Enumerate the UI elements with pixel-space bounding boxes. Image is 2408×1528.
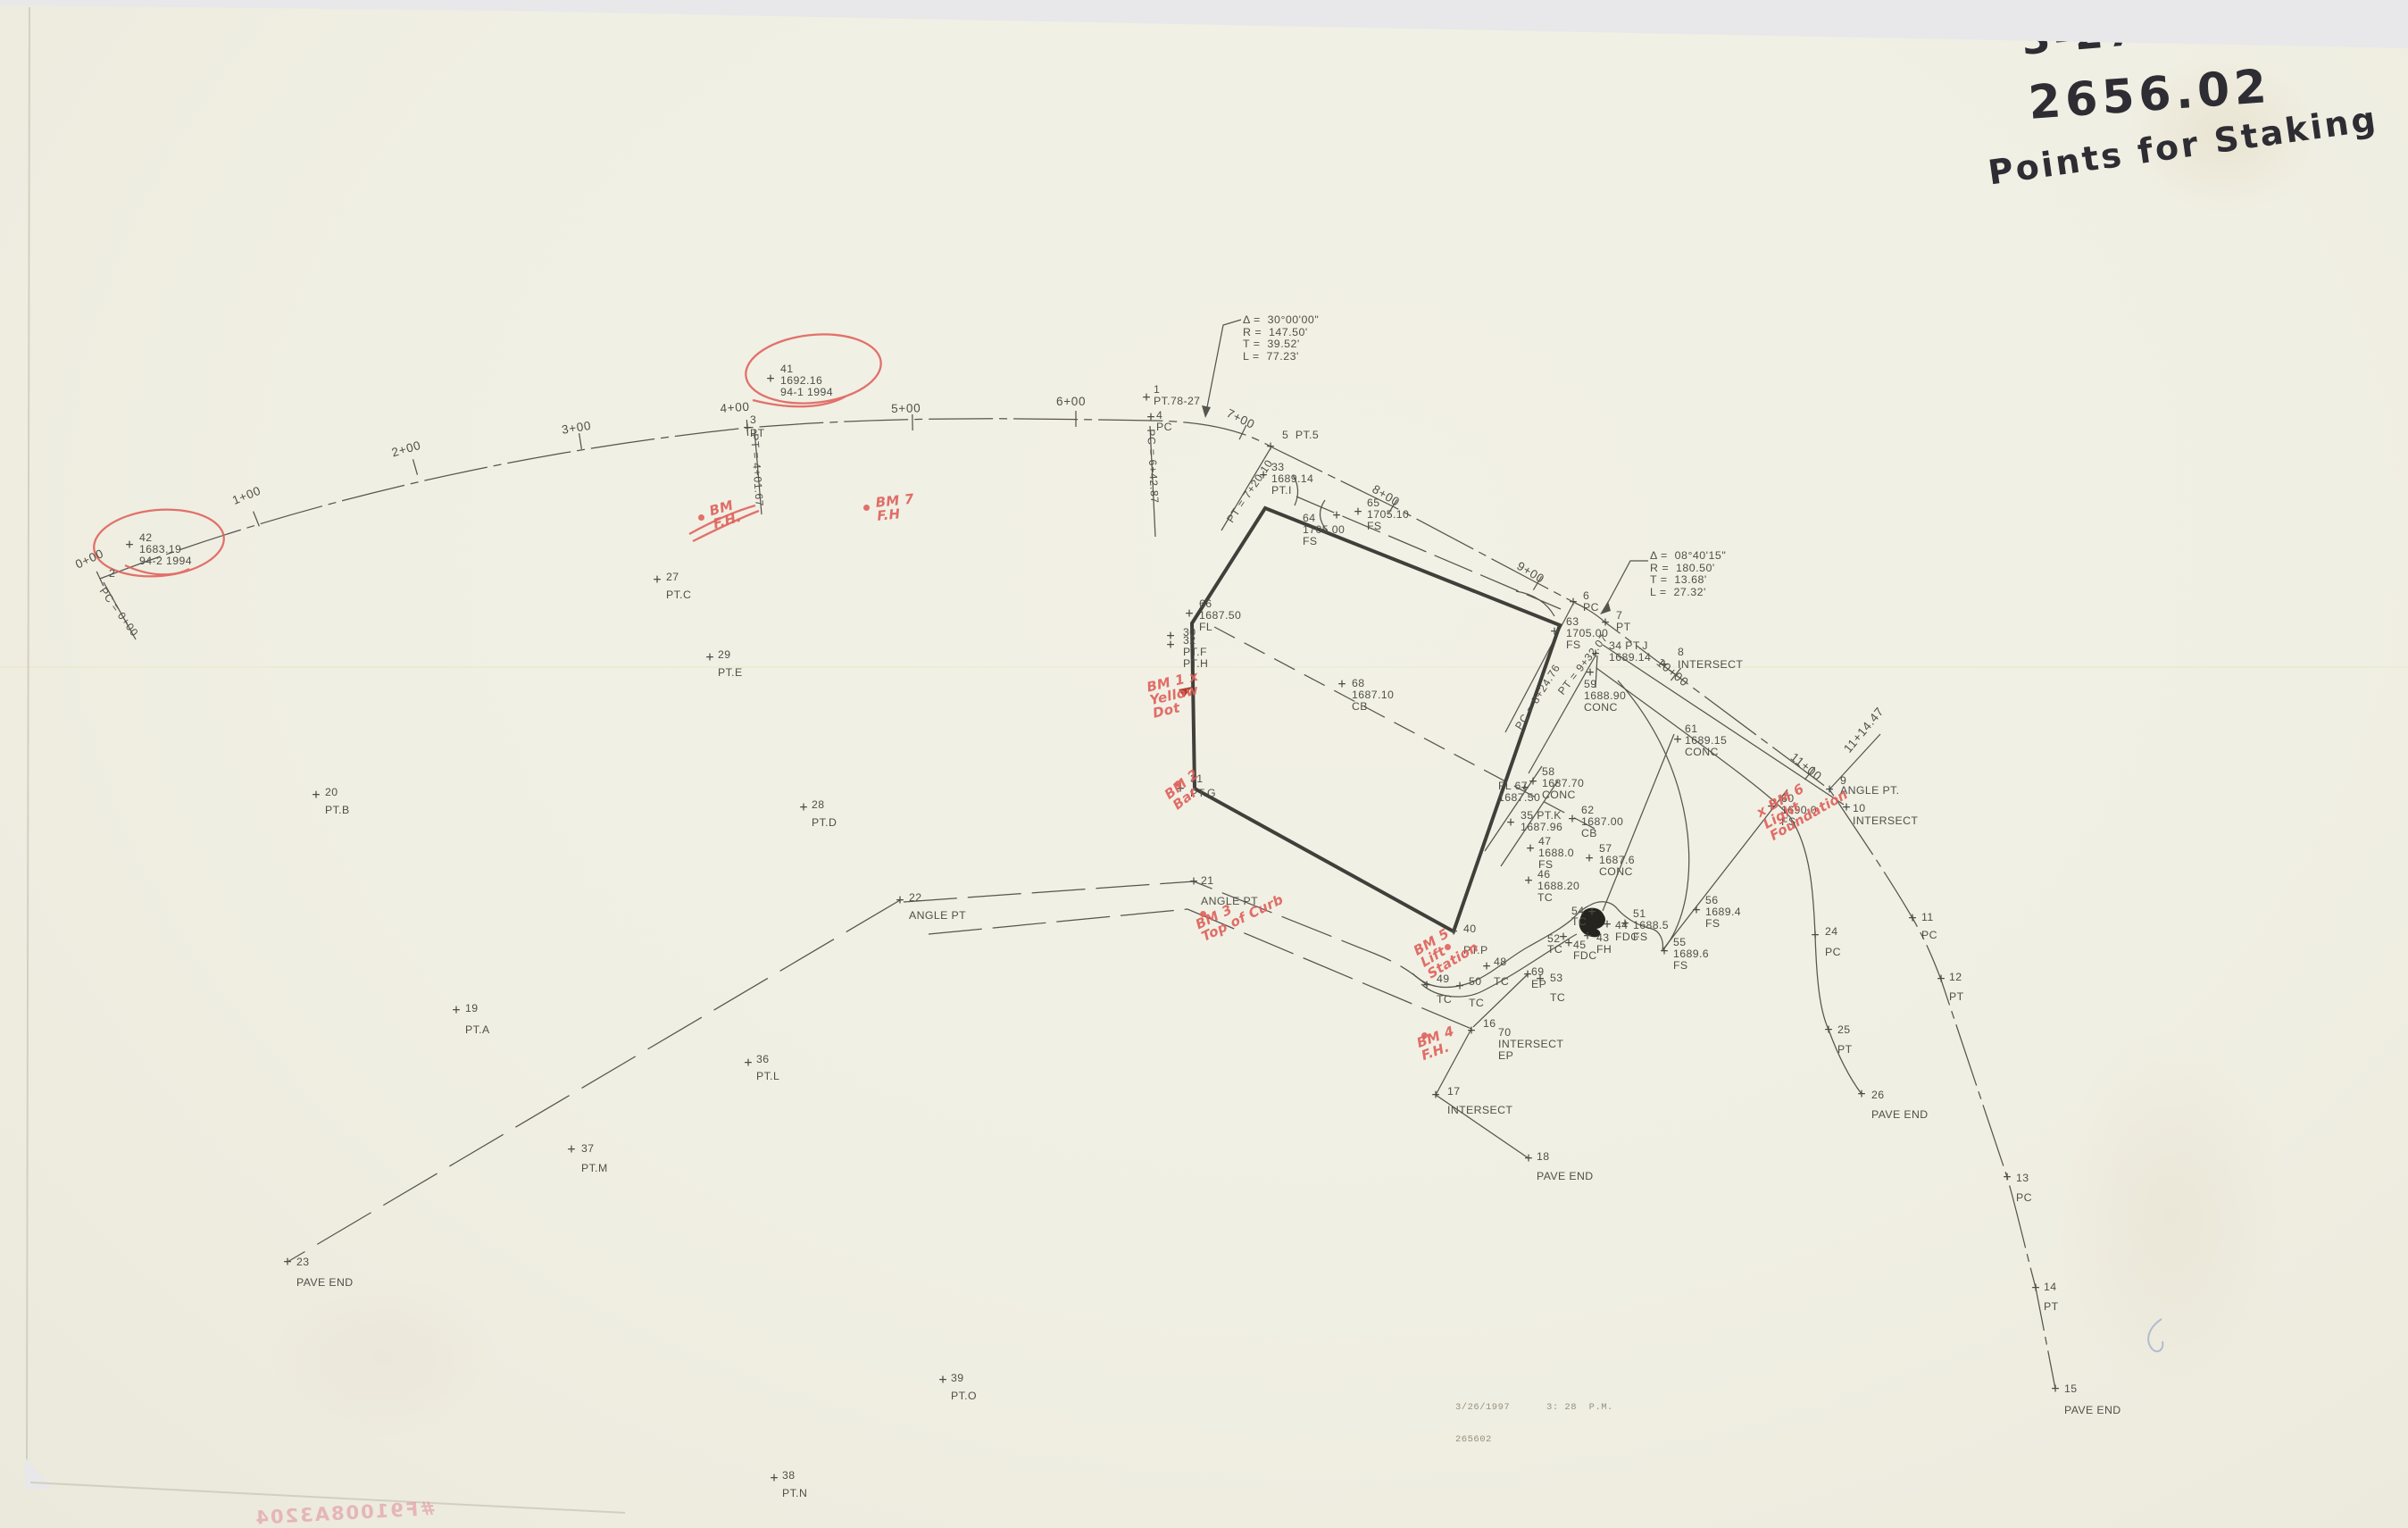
building-outline (1192, 508, 1560, 931)
point-label-line: 69 (1531, 965, 1546, 978)
point-label-line: PT.C (666, 586, 691, 604)
point-label-line: PT (1616, 622, 1631, 633)
point-label-33: 331689.14PT.I (1271, 462, 1313, 497)
point-label-line: FDC (1573, 950, 1596, 961)
point-label-9: 9ANGLE PT. (1840, 776, 1899, 796)
point-label-line: 5 PT.5 (1282, 430, 1319, 441)
point-marker-24: + (1811, 926, 1819, 942)
point-label-line: FS (1303, 536, 1345, 547)
point-marker-50: + (1455, 977, 1463, 993)
curve-data-row: T = 13.68' (1650, 574, 1726, 587)
point-label-11: 11PC (1921, 908, 1937, 944)
point-label-line: 14 (2044, 1277, 2059, 1297)
point-label-line: FS (1673, 960, 1709, 972)
point-label-5: 5 PT.5 (1282, 430, 1319, 441)
point-label-line: CONC (1599, 866, 1635, 878)
point-label-line: 8 (1678, 646, 1743, 658)
point-marker-16: + (1467, 1022, 1475, 1038)
paper-edge-crease (27, 7, 29, 1465)
point-label-43: 43FH (1596, 932, 1612, 956)
red-benchmark-dot (1175, 781, 1181, 787)
point-label-line: PT (750, 427, 765, 440)
point-label-34: 34 PT.J1689.14 (1609, 640, 1651, 664)
point-marker-21: + (1189, 873, 1197, 889)
point-label-line: PT (1837, 1040, 1853, 1059)
point-marker-25: + (1824, 1021, 1832, 1037)
point-label-line: CONC (1685, 747, 1727, 758)
point-marker-11: + (1908, 909, 1916, 925)
paper-corner-notch (25, 1457, 54, 1490)
point-marker-51: + (1621, 914, 1629, 931)
point-label-line: INTERSECT (1447, 1101, 1512, 1120)
point-label-line: PC (1921, 926, 1937, 944)
point-label-38: 38PT.N (782, 1466, 807, 1502)
point-marker-5: + (1266, 438, 1274, 454)
point-label-line: PT (2044, 1297, 2059, 1316)
point-label-68: 681687.10CB (1352, 678, 1394, 713)
point-label-66: 661687.50FL (1199, 598, 1241, 633)
scanned-survey-drawing: 3-27-97 2656.02 Points for Staking Δ = 3… (0, 0, 2408, 1528)
point-marker-12: + (1937, 970, 1945, 986)
point-label-67: FL 671687.50 (1498, 781, 1540, 804)
point-marker-44: + (1603, 915, 1611, 931)
point-label-line: PC (2016, 1188, 2032, 1207)
point-marker-33: + (1259, 466, 1267, 482)
point-label-32: 32PT.FPT.H (1183, 635, 1208, 670)
point-label-46: 461688.20TC (1537, 869, 1579, 904)
point-label-line: 94-1 1994 (780, 387, 833, 398)
point-marker-26: + (1857, 1085, 1865, 1101)
point-label-line: FS (1566, 639, 1608, 651)
point-label-line: 20 (325, 783, 350, 801)
point-marker-36: + (744, 1054, 752, 1070)
point-label-3: 3PT (750, 413, 765, 440)
point-label-line: PAVE END (2064, 1399, 2121, 1421)
point-label-line: 39 (951, 1369, 977, 1387)
point-label-line: CONC (1584, 702, 1626, 714)
point-marker-29: + (705, 648, 713, 664)
point-marker-17: + (1431, 1086, 1439, 1102)
point-label-line: PT.N (782, 1484, 807, 1502)
point-label-35: 35 PT.K1687.96 (1521, 810, 1562, 833)
point-marker-38: + (770, 1469, 778, 1485)
bleed-line-1: #F91008A3204 (61, 1498, 437, 1528)
point-label-line: 48 (1494, 952, 1509, 972)
point-label-line: 22 (909, 889, 966, 906)
point-label-57: 571687.6CONC (1599, 843, 1635, 878)
point-label-line: PT (1949, 987, 1964, 1006)
red-benchmark-dot (698, 514, 704, 521)
point-label-55: 551689.6FS (1673, 937, 1709, 972)
point-label-36: 36PT.L (756, 1051, 779, 1085)
point-label-16: 16 (1483, 1018, 1496, 1030)
road-edge (1596, 668, 1862, 1094)
point-label-line: TC (1547, 944, 1562, 955)
lower-road-edge (904, 881, 1427, 985)
road-linework (96, 320, 2055, 1389)
blue-pen-squiggle (2148, 1319, 2162, 1351)
point-label-42: 421683.1994-2 1994 (139, 532, 192, 567)
point-marker-63: + (1550, 622, 1558, 639)
point-label-17: 17INTERSECT (1447, 1082, 1512, 1120)
point-marker-20: + (312, 786, 320, 802)
point-label-line: PT.I (1271, 485, 1313, 497)
point-label-8: 8INTERSECT (1678, 646, 1743, 671)
point-label-24: 24PC (1825, 922, 1841, 963)
curve-data-table-1: Δ = 30°00'00"R = 147.50'T = 39.52'L = 77… (1243, 314, 1319, 363)
point-label-2: 2 (109, 568, 115, 580)
point-label-line: 10 (1853, 802, 1918, 814)
red-benchmark-dot (1200, 911, 1206, 917)
station-ticks (96, 411, 1814, 780)
point-marker-42: + (125, 536, 133, 552)
paper-sheet: 3-27-97 2656.02 Points for Staking Δ = 3… (0, 0, 2408, 1528)
point-label-52: 52TC (1547, 933, 1562, 955)
point-marker-28: + (799, 798, 807, 814)
point-label-4: 4PC (1156, 410, 1172, 433)
point-label-54: 54TC (1571, 906, 1587, 927)
point-label-47: 471688.0FS (1538, 836, 1574, 871)
point-label-19: 19PT.A (465, 998, 490, 1040)
point-marker-65: + (1354, 503, 1362, 519)
point-label-14: 14PT (2044, 1277, 2059, 1316)
point-label-23: 23PAVE END (296, 1252, 354, 1293)
station-label: 4+00 (720, 400, 750, 415)
point-label-line: TC (1494, 972, 1509, 991)
point-label-45: 45FDC (1573, 939, 1596, 961)
point-marker-57: + (1585, 849, 1593, 865)
point-marker-13: + (2003, 1168, 2011, 1184)
curve-data-row: Δ = 08°40'15" (1650, 550, 1726, 563)
point-label-25: 25PT (1837, 1020, 1853, 1059)
point-label-line: FL (1199, 622, 1241, 633)
point-label-51: 511688.5FS (1633, 908, 1669, 943)
curve-data-row: L = 27.32' (1650, 587, 1726, 599)
curve-data-row: L = 77.23' (1243, 351, 1319, 363)
curve-data-table-2: Δ = 08°40'15"R = 180.50'T = 13.68'L = 27… (1650, 550, 1726, 598)
red-benchmark-dot (1421, 1032, 1428, 1039)
point-marker-15: + (2051, 1380, 2059, 1396)
point-label-line: 13 (2016, 1168, 2032, 1188)
point-marker-49: + (1422, 976, 1430, 992)
red-benchmark-dot (1445, 944, 1451, 950)
point-marker-61: + (1673, 731, 1681, 747)
point-label-line: PT.78-27 (1154, 396, 1200, 407)
point-label-line: 94-2 1994 (139, 555, 192, 567)
point-label-line: ANGLE PT (909, 906, 966, 924)
point-label-line: TC (1550, 988, 1565, 1007)
point-label-line: 38 (782, 1466, 807, 1484)
point-label-line: 37 (581, 1139, 608, 1158)
point-label-27: 27PT.C (666, 568, 691, 604)
point-label-line: 1687.50 (1498, 792, 1540, 804)
point-marker-47: + (1526, 839, 1534, 856)
point-marker-27: + (653, 571, 661, 587)
station-tick (413, 459, 418, 474)
point-label-line: FS (1633, 931, 1669, 943)
point-label-line: 12 (1949, 967, 1964, 987)
stamp-number: 265602 (1455, 1434, 1613, 1445)
red-pen-marks (91, 328, 885, 581)
point-label-line: PC (1156, 422, 1172, 433)
point-label-line: PT.E (718, 664, 743, 681)
point-label-29: 29PT.E (718, 646, 743, 681)
point-label-line: 17 (1447, 1082, 1512, 1101)
point-label-line: FS (1538, 859, 1574, 871)
point-label-line: 27 (666, 568, 691, 586)
point-label-line: 28 (812, 796, 837, 814)
point-label-39: 39PT.O (951, 1369, 977, 1405)
point-label-line: PC (1583, 602, 1599, 614)
point-label-line: 16 (1483, 1018, 1496, 1030)
point-label-line: 24 (1825, 922, 1841, 942)
point-label-line: TC (1469, 992, 1484, 1014)
point-label-48: 48TC (1494, 952, 1509, 991)
point-label-line: 11 (1921, 908, 1937, 926)
red-benchmark-note: BM 7F.H (875, 492, 916, 522)
point-label-line: 23 (296, 1252, 354, 1273)
point-label-line: PAVE END (296, 1273, 354, 1293)
point-label-line: PC (1825, 942, 1841, 963)
point-label-line: ANGLE PT. (1840, 786, 1899, 796)
point-marker-55: + (1660, 942, 1668, 958)
dashed-tie-line (287, 900, 900, 1262)
point-label-50: 50TC (1469, 971, 1484, 1014)
point-label-line: INTERSECT (1678, 658, 1743, 671)
point-label-line: 18 (1537, 1147, 1594, 1166)
point-label-41: 411692.1694-1 1994 (780, 363, 833, 398)
point-label-line: PAVE END (1871, 1105, 1929, 1124)
stamp-time: 3: 28 P.M. (1546, 1402, 1613, 1413)
point-label-12: 12PT (1949, 967, 1964, 1006)
point-label-53: 53TC (1550, 968, 1565, 1007)
point-marker-8: + (1660, 655, 1668, 672)
point-label-line: CB (1352, 701, 1394, 713)
point-label-line: 3 (750, 413, 765, 427)
station-tick (254, 512, 260, 527)
point-label-line: PT.L (756, 1068, 779, 1085)
point-label-line: TC (1537, 892, 1579, 904)
point-label-line: PAVE END (1537, 1166, 1594, 1186)
point-label-line: 21 (1201, 871, 1258, 891)
main-alignment-centerline (100, 419, 2055, 1389)
curve-table-leader (1604, 561, 1648, 609)
point-marker-32: + (1166, 636, 1174, 652)
point-label-line: 53 (1550, 968, 1565, 988)
point-label-18: 18PAVE END (1537, 1147, 1594, 1186)
point-label-line: 36 (756, 1051, 779, 1068)
point-label-58: 581687.70CONC (1542, 766, 1584, 801)
curve-table-leader (1207, 320, 1241, 407)
point-label-26: 26PAVE END (1871, 1085, 1929, 1124)
point-label-line: EP (1498, 1050, 1563, 1062)
point-marker-41: + (766, 370, 774, 386)
point-label-line: 25 (1837, 1020, 1853, 1040)
station-tick (579, 433, 582, 449)
point-marker-66: + (1185, 605, 1193, 621)
point-marker-54: + (1587, 903, 1596, 919)
leader-arrowhead (1600, 601, 1611, 614)
point-label-69: 69EP (1531, 965, 1546, 990)
red-benchmark-dot (863, 505, 870, 511)
point-label-56: 561689.4FS (1705, 895, 1741, 930)
point-label-line: 19 (465, 998, 490, 1019)
point-label-37: 37PT.M (581, 1139, 608, 1178)
point-label-10: 10INTERSECT (1853, 802, 1918, 827)
point-marker-4: + (1146, 408, 1154, 424)
point-label-65: 651705.10FS (1367, 497, 1409, 532)
point-label-line: CB (1581, 828, 1623, 839)
point-label-line: CONC (1542, 789, 1584, 801)
point-label-13: 13PC (2016, 1168, 2032, 1207)
stamp-date: 3/26/1997 (1455, 1402, 1510, 1413)
point-label-line: PT.O (951, 1387, 977, 1405)
point-label-line: 50 (1469, 971, 1484, 992)
point-marker-18: + (1524, 1149, 1532, 1165)
point-label-6: 6PC (1583, 590, 1599, 614)
point-label-22: 22ANGLE PT (909, 889, 966, 924)
point-label-line: EP (1531, 978, 1546, 990)
point-label-line: PT.B (325, 801, 350, 819)
point-label-15: 15PAVE END (2064, 1378, 2121, 1421)
point-marker-39: + (938, 1371, 946, 1387)
point-label-7: 7PT (1616, 610, 1631, 633)
point-marker-62: + (1568, 810, 1576, 826)
point-marker-6: + (1569, 593, 1577, 609)
point-label-64: 641705.00FS (1303, 513, 1345, 547)
point-label-line: FH (1596, 944, 1612, 956)
plot-stamp: 3/26/1997 3: 28 P.M. 265602 (1455, 1381, 1613, 1466)
point-label-line: FS (1705, 918, 1741, 930)
point-marker-35: + (1506, 814, 1514, 830)
point-label-line: 1687.96 (1521, 822, 1562, 833)
point-label-62: 621687.00CB (1581, 805, 1623, 839)
point-label-line: 15 (2064, 1378, 2121, 1399)
point-marker-46: + (1524, 872, 1532, 888)
point-label-line: INTERSECT (1853, 814, 1918, 827)
point-label-line: FS (1367, 521, 1409, 532)
point-label-line: PT.M (581, 1158, 608, 1178)
point-marker-37: + (567, 1140, 575, 1156)
point-marker-23: + (283, 1253, 291, 1269)
point-label-70: 70INTERSECTEP (1498, 1027, 1563, 1062)
point-marker-14: + (2031, 1279, 2039, 1295)
point-marker-1: + (1142, 388, 1150, 405)
point-label-28: 28PT.D (812, 796, 837, 831)
point-marker-56: + (1692, 901, 1700, 917)
station-tick (96, 572, 104, 586)
point-label-line: TC (1571, 916, 1587, 927)
point-label-line: PT.A (465, 1019, 490, 1040)
interior-utility-line (1214, 627, 1598, 831)
curve-data-row: T = 39.52' (1243, 338, 1319, 351)
point-label-59: 591688.90CONC (1584, 679, 1626, 714)
point-label-20: 20PT.B (325, 783, 350, 819)
curve-data-row: Δ = 30°00'00" (1243, 314, 1319, 327)
point-label-line: 26 (1871, 1085, 1929, 1105)
point-label-line: 29 (718, 646, 743, 664)
curve-data-row: R = 147.50' (1243, 327, 1319, 339)
point-label-1: 1PT.78-27 (1154, 384, 1200, 407)
point-marker-68: + (1337, 675, 1346, 691)
point-marker-22: + (896, 891, 904, 907)
point-label-line: 2 (109, 568, 115, 580)
station-label: 5+00 (891, 401, 921, 415)
leader-arrowhead (1202, 405, 1211, 418)
point-marker-19: + (452, 1001, 460, 1017)
point-label-line: TC (1437, 989, 1452, 1010)
point-label-line: 1689.14 (1609, 652, 1651, 664)
point-label-line: PT.D (812, 814, 837, 831)
curve-data-row: R = 180.50' (1650, 563, 1726, 575)
station-label: 6+00 (1056, 395, 1086, 408)
point-label-61: 611689.15CONC (1685, 723, 1727, 758)
point-label-63: 631705.00FS (1566, 616, 1608, 651)
